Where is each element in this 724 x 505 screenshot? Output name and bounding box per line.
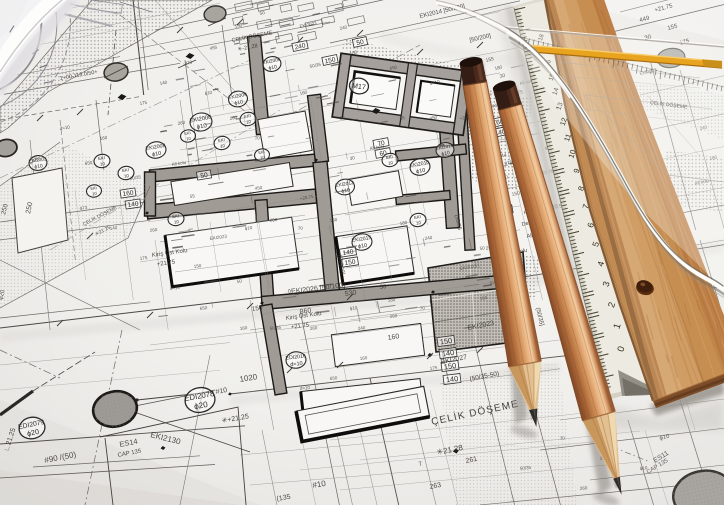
svg-text:160: 160 bbox=[360, 355, 369, 361]
svg-text:650: 650 bbox=[330, 375, 339, 381]
svg-text:175: 175 bbox=[139, 255, 148, 261]
svg-text:140: 140 bbox=[445, 374, 458, 384]
svg-text:260: 260 bbox=[310, 325, 319, 331]
svg-text:ϕ10: ϕ10 bbox=[349, 305, 358, 311]
svg-text:240: 240 bbox=[357, 325, 366, 331]
svg-text:150: 150 bbox=[439, 336, 452, 347]
svg-text:150: 150 bbox=[193, 263, 202, 269]
svg-text:175: 175 bbox=[430, 365, 439, 371]
svg-text:160: 160 bbox=[240, 325, 249, 331]
svg-text:260: 260 bbox=[580, 485, 588, 491]
svg-text:650: 650 bbox=[200, 305, 209, 311]
svg-text:530: 530 bbox=[344, 290, 357, 298]
svg-text:50: 50 bbox=[200, 172, 209, 180]
svg-text:ϕ10: ϕ10 bbox=[640, 465, 649, 471]
